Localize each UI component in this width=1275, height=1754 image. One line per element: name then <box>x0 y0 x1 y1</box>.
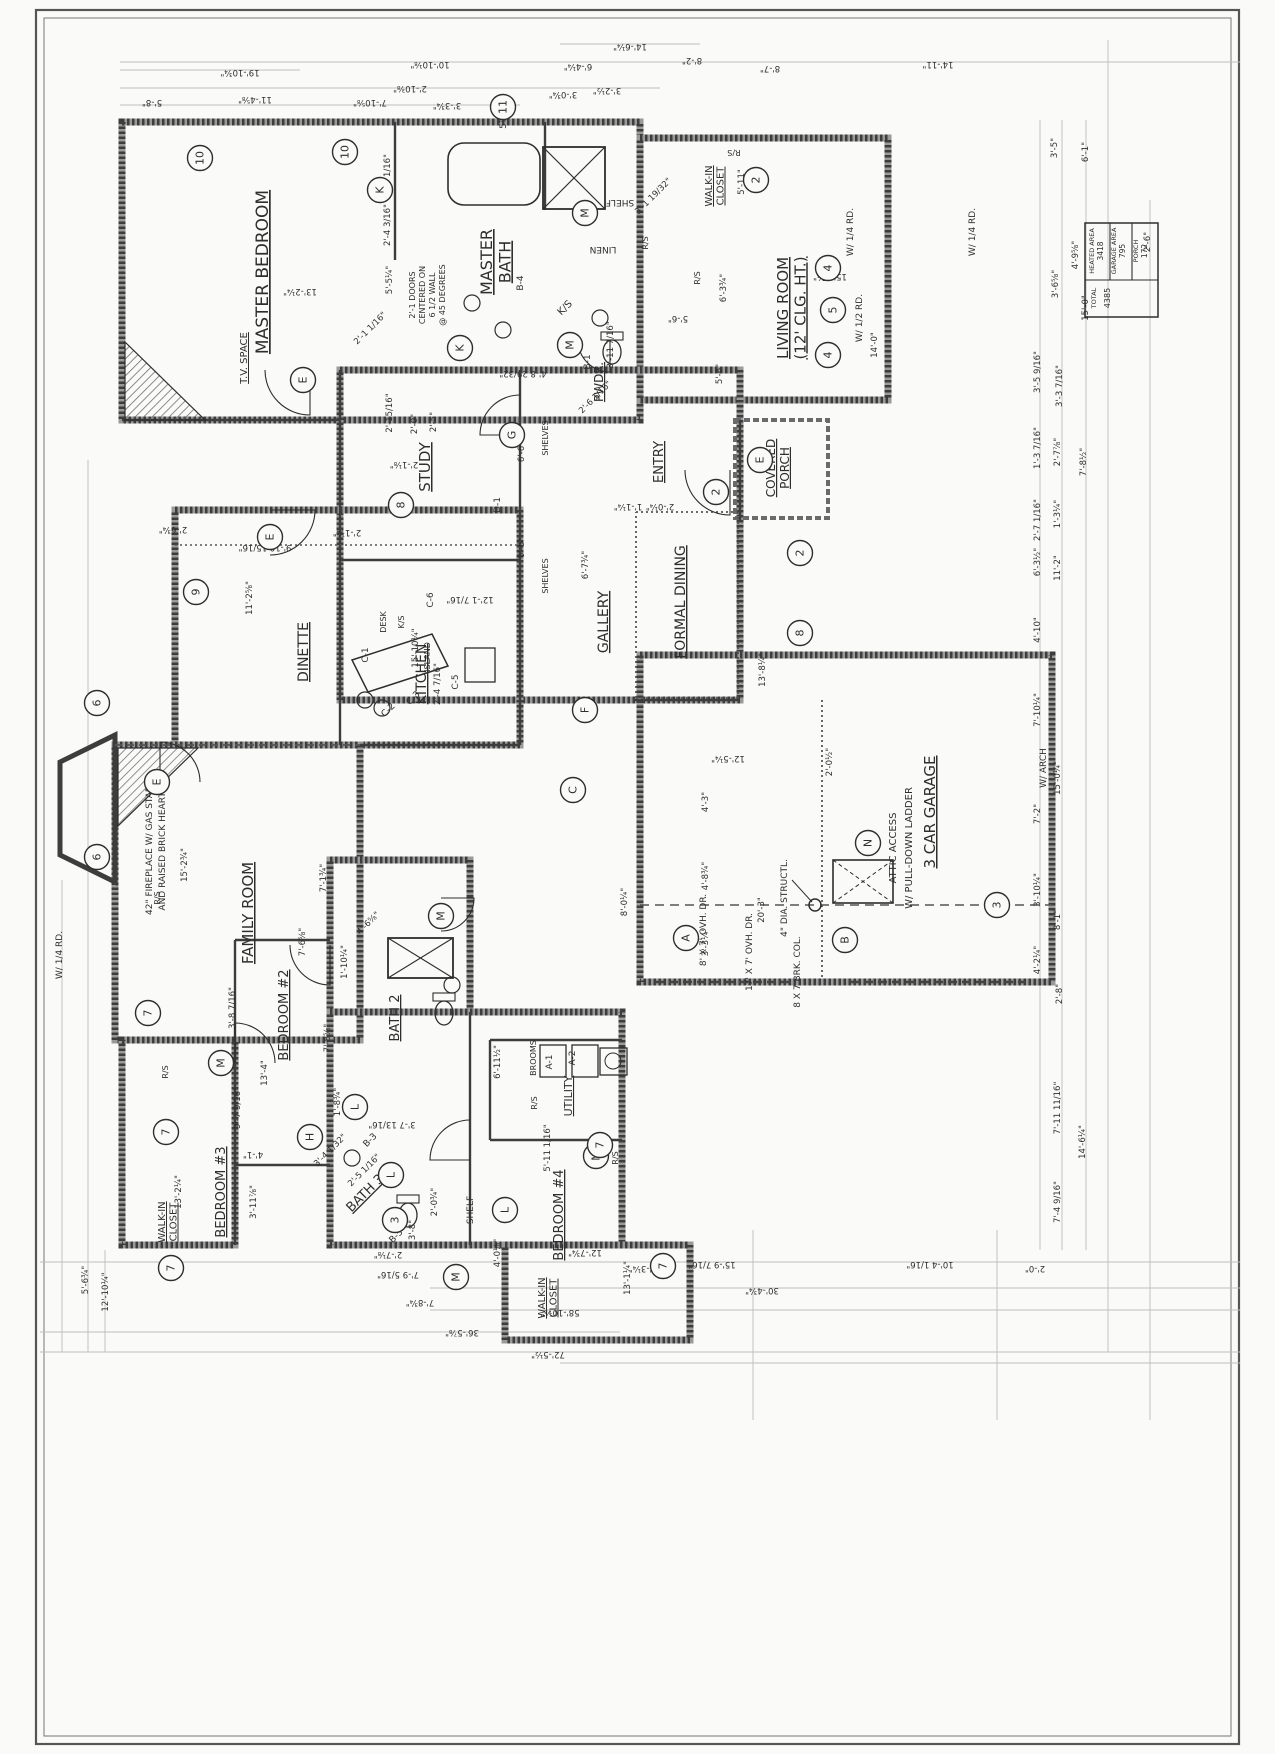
annotation-label: W/ ARCH <box>1039 748 1049 788</box>
dimension-text: 6'-7¾" <box>581 551 591 579</box>
dimension-text: 15'-9 7/16" <box>688 1259 735 1269</box>
annotation-label: SHELF <box>606 197 634 207</box>
dimension-text: 2'-10⅜" <box>393 83 427 93</box>
marker-label: A <box>680 934 693 942</box>
dimension-text: 2'-0" <box>1025 1263 1045 1273</box>
door-swing <box>290 945 330 985</box>
marker-label: M <box>579 208 592 218</box>
dimension-text: 4'-9⅝" <box>1071 241 1081 269</box>
dimension-text: 3'-8 7/16" <box>228 987 238 1029</box>
marker-label: H <box>304 1133 317 1141</box>
annotation-label: A-1 <box>545 1055 555 1070</box>
annotation-label: W/ 1/4 RD. <box>968 208 978 256</box>
annotation-label: K/S <box>397 615 406 628</box>
annotation-label: W/ 1/4 RD. <box>55 931 65 979</box>
dimension-text: 2'-0½" <box>825 748 835 776</box>
marker-label: 2 <box>794 550 807 557</box>
marker-label: K <box>454 344 467 352</box>
dimension-text: 3'-3 7/16" <box>1055 365 1065 407</box>
annotation-label: 4" DIA. STRUCTL. <box>780 859 790 937</box>
blueprint-page: MASTER BEDROOMMASTERBATHLIVING ROOM(12' … <box>0 0 1275 1754</box>
room-label: BEDROOM #2 <box>277 969 292 1060</box>
room-label: T.V. SPACE <box>239 332 250 385</box>
sink <box>444 977 460 993</box>
dimension-text: 6'-11½" <box>493 1045 503 1079</box>
dimension-text: 7'-11 11/16" <box>1053 1082 1063 1135</box>
dimension-text: 1'-8¾" <box>333 1088 343 1116</box>
dimension-text: 13'-4" <box>260 1060 270 1086</box>
dimension-text: 2'-7⅛" <box>374 1249 402 1259</box>
dimension-text: 2'-0" <box>410 414 420 434</box>
annotation-label: 17' X 7' OVH. DR. <box>745 913 755 991</box>
annotation-label: C-1 <box>361 647 371 662</box>
marker-label: M <box>564 340 577 350</box>
marker-label: L <box>349 1103 362 1110</box>
dimension-text: 36'-5⅞" <box>445 1327 479 1337</box>
dimension-text: 2'-0¼" <box>646 501 674 511</box>
marker-label: 9 <box>190 589 203 596</box>
marker-label: F <box>579 707 592 713</box>
dimension-text: 13'-8¼" <box>758 653 768 687</box>
room-label: BEDROOM #3 <box>214 1146 229 1237</box>
dimension-text: 15'-10¼" <box>411 628 421 667</box>
marker-label: L <box>499 1206 512 1213</box>
dimension-text: 13'-1¼" <box>623 1261 633 1295</box>
refrigerator <box>465 648 495 682</box>
dimension-text: 12'-1 7/16" <box>446 594 493 604</box>
dimension-text: 6'-4¼" <box>564 61 592 71</box>
annotation-label: ISLAND <box>423 642 432 672</box>
dimension-text: 3'-2½" <box>593 85 621 95</box>
dimension-text: 4'-1" <box>243 1149 263 1159</box>
sink <box>344 1150 360 1166</box>
room-label: UTILITY <box>562 1075 575 1116</box>
dimension-text: 7'-8¾" <box>406 1297 434 1307</box>
area-table-value: 172 <box>1140 244 1149 259</box>
dimension-text: 72'-5½" <box>531 1349 565 1359</box>
toilet-tank <box>397 1195 419 1203</box>
dimension-text: 3'-3¼" <box>701 928 711 956</box>
annotation-label: W/ 1/2 RD. <box>855 294 865 342</box>
dimension-text: 2'-1¼" <box>333 527 361 537</box>
marker-label: 5 <box>827 307 840 314</box>
annotation-label: C-6 <box>426 592 436 608</box>
dimension-text: 3'-7 13/16" <box>368 1119 415 1129</box>
dimension-text: 11'-2⅝" <box>245 581 255 615</box>
annotation-label: SHELVES <box>541 420 550 455</box>
annotation-label: C-5 <box>451 674 461 689</box>
marker-label: K <box>374 186 387 194</box>
annotation-label: SHELVES <box>541 558 550 593</box>
annotation-label: B-4 <box>516 275 526 290</box>
dimension-text: 13'-2¼" <box>174 1175 184 1209</box>
dimension-text: 8'-2" <box>682 55 702 65</box>
marker-label: M <box>450 1272 463 1282</box>
marker-label: 10 <box>194 151 207 165</box>
annotation-label: SHELF <box>466 1196 476 1224</box>
dimension-text: 11'-2" <box>1053 555 1063 581</box>
dimension-text: 3'-5 9/16" <box>1033 351 1043 393</box>
marker-label: L <box>385 1171 398 1178</box>
dimension-text: 3'-3¾" <box>433 100 461 110</box>
area-table-label: GARAGE AREA <box>1110 227 1118 274</box>
annotation-label: 8 X 7 BRK. COL. <box>793 936 803 1008</box>
dimension-text: 4'-8¾" <box>701 862 711 890</box>
annotation-label: R/S <box>693 271 702 284</box>
dimension-text: 10'-4 1/16" <box>906 1259 953 1269</box>
room-label: MASTER BEDROOM <box>253 190 273 354</box>
dimension-text: 4'-8 29/32" <box>499 368 546 378</box>
dimension-text: 4'-0⅛" <box>493 1239 503 1267</box>
room-label: BATH 2 <box>388 995 403 1042</box>
marker-label: 2 <box>710 489 723 496</box>
area-table-value: 3418 <box>1096 241 1105 260</box>
dimension-text: 1'-3 7/16" <box>1033 427 1043 469</box>
sink <box>495 322 511 338</box>
dimension-text: 10'-10⅛" <box>410 59 449 69</box>
marker-label: C <box>567 786 580 794</box>
dimension-text: 15'-2¾" <box>180 848 190 882</box>
marker-label: 6 <box>91 700 104 707</box>
room-label: BEDROOM #4 <box>552 1169 567 1260</box>
marker-label: E <box>264 533 277 540</box>
dimension-text: 4'-10" <box>1033 617 1043 643</box>
dimension-text: 20'-3" <box>757 897 767 923</box>
annotation-label: 2'-1 DOORS <box>408 271 417 318</box>
annotation-label: LINEN <box>590 244 617 254</box>
dimension-text: 6'-1" <box>1081 142 1091 162</box>
marker-label: 7 <box>142 1010 155 1017</box>
dimension-text: 12'-10¼" <box>101 1272 111 1311</box>
marker-label: N <box>862 839 875 847</box>
area-table-total-value: 4385 <box>1103 288 1112 308</box>
dimension-text: 9'-7 9/16" <box>233 1087 243 1129</box>
annotation-label: R/S <box>727 148 740 157</box>
dimension-text: 2'-7 1/16" <box>1033 499 1043 541</box>
dimension-text: 5'-6" <box>715 364 725 384</box>
annotation-label: C-2 <box>380 702 398 720</box>
dimension-text: 2'-8" <box>1055 984 1065 1004</box>
marker-label: 11 <box>497 100 510 114</box>
dimension-text: 7'-1¾" <box>319 864 329 892</box>
marker-label: E <box>754 456 767 463</box>
annotation-label: R/S <box>611 1151 620 1164</box>
annotation-label: R/S <box>641 236 650 249</box>
dimension-text: 14'-6¼" <box>613 41 647 51</box>
dimension-text: 7'-2" <box>1033 804 1043 824</box>
dimension-text: 8'-1" <box>1053 910 1063 930</box>
marker-label: 6 <box>91 854 104 861</box>
dimension-text: 6'-3¾" <box>719 274 729 302</box>
dimension-text: 6'-6" <box>517 538 527 558</box>
marker-label: 7 <box>594 1142 607 1149</box>
marker-label: 4 <box>822 265 835 272</box>
room-label: DINETTE <box>296 622 312 682</box>
dimension-text: 7'-8½" <box>1079 448 1089 476</box>
marker-label: 7 <box>657 1263 670 1270</box>
area-table-label: PORCH <box>1132 240 1140 263</box>
floorplan-canvas: MASTER BEDROOMMASTERBATHLIVING ROOM(12' … <box>0 0 1275 1754</box>
marker-label: 10 <box>339 145 352 159</box>
marker-label: 3 <box>389 1217 402 1224</box>
marker-label: 2 <box>750 177 763 184</box>
sink <box>464 295 480 311</box>
room-label: LIVING ROOM(12' CLG. HT.) <box>774 256 809 359</box>
marker-label: E <box>297 376 310 383</box>
dimension-text: 2'-1 1/16" <box>352 310 389 347</box>
dimension-text: 7'-10¼" <box>1033 693 1043 727</box>
dimension-text: 1'-3¼" <box>1053 500 1063 528</box>
dimension-text: 2'-1⅛" <box>390 459 418 469</box>
marker-label: 8 <box>794 630 807 637</box>
dimension-text: 4'-3" <box>701 792 711 812</box>
dimension-text: 14'-6¼" <box>1078 1125 1088 1159</box>
dimension-text: 2'-4 3/16" <box>383 204 393 246</box>
dimension-text: 5'-6" <box>668 313 688 323</box>
annotation-label: @ 45 DEGREES <box>438 264 447 325</box>
room-label: GALLERY <box>596 590 612 653</box>
dimension-text: 7'-4 9/16" <box>1053 1181 1063 1223</box>
annotation-label: 6 1/2 WALL <box>428 272 437 317</box>
dimension-text: 19'-10¾" <box>220 67 259 77</box>
annotation-label: B-1 <box>583 354 593 369</box>
dimension-text: 3'-6⅝" <box>1051 270 1061 298</box>
marker-label: M <box>435 911 448 921</box>
annotation-label: W/ 1/4 RD. <box>846 208 856 256</box>
dimension-text: 7'-10⅝" <box>353 97 387 107</box>
marker-label: 8 <box>395 502 408 509</box>
toilet-tank <box>433 993 455 1001</box>
dimension-text: 13'-2¼" <box>283 286 317 296</box>
dimension-text: 4'-2¼" <box>1033 946 1043 974</box>
dimension-text: 2'-7⅞" <box>1053 438 1063 466</box>
marker-label: 3 <box>991 902 1004 909</box>
attic-x <box>833 860 893 903</box>
annotation-label: R/S <box>161 1065 170 1078</box>
dimension-text: 3'-11⅞" <box>249 1185 259 1219</box>
bathtub-master <box>448 143 540 205</box>
dimension-text: 8'-0¼" <box>620 888 630 916</box>
dimension-text: 1'-10¼" <box>340 945 350 979</box>
dimension-text: 30'-4¾" <box>745 1285 779 1295</box>
dimension-text: 1'-1¼" <box>614 501 642 511</box>
area-table-value: 795 <box>1118 244 1127 259</box>
dimension-text: 5'-11 1/16" <box>543 1124 553 1171</box>
marker-label: 7 <box>165 1265 178 1272</box>
annotation-label: ATTIC ACCESS <box>888 813 899 884</box>
dimension-text: 2'-15/16" <box>385 393 395 432</box>
dimension-text: 2'-6¾" <box>159 524 187 534</box>
dimension-text: 2'-0¾" <box>430 1188 440 1216</box>
leader-line <box>792 880 812 902</box>
room-label: FORMAL DINING <box>673 545 689 659</box>
annotation-label: K/S <box>556 299 575 318</box>
dimension-text: 7'-8⅝" <box>323 1024 333 1052</box>
marker-label: B <box>839 936 852 944</box>
room-label: FAMILY ROOM <box>239 862 257 964</box>
annotation-label: CENTERED ON <box>418 266 427 324</box>
dimension-text: 11'-4⅝" <box>238 94 272 104</box>
dimension-text: 3'-5" <box>1050 138 1060 158</box>
dimension-text: 2'-5" <box>429 412 439 432</box>
marker-label: G <box>506 431 519 440</box>
dimension-text: 3'-11 7/16" <box>606 321 616 368</box>
dimension-text: 3'-10¼" <box>1033 873 1043 907</box>
dimension-text: 2'-4 7/16" <box>433 663 443 705</box>
dimension-text: 7'-6⅝" <box>298 928 308 956</box>
dimension-text: 5'-8" <box>142 97 162 107</box>
annotation-label: B-3 <box>362 1132 380 1150</box>
area-table-label: HEATED AREA <box>1088 228 1096 274</box>
annotation-label: BROOMS <box>529 1040 538 1076</box>
marker-label: E <box>151 778 164 785</box>
room-label: ENTRY <box>652 441 667 483</box>
dimension-text: 7'-9 5/16" <box>377 1269 419 1279</box>
dimension-text: 15'-0¼" <box>1053 761 1063 795</box>
annotation-label: W/ PULL-DOWN LADDER <box>904 787 915 909</box>
dimension-text: 5'-5¼" <box>385 266 395 294</box>
wall-bath2-block <box>330 860 470 1012</box>
room-label: MASTERBATH <box>477 229 514 295</box>
fireplace-master <box>125 342 205 420</box>
dimension-text: 5'-6¾" <box>81 1266 91 1294</box>
room-label: WALK-INCLOSET <box>704 165 727 206</box>
marker-label: M <box>215 1058 228 1068</box>
annotation-label: DESK <box>379 610 388 632</box>
dimension-text: 3'-8" <box>408 1220 418 1240</box>
annotation-label: A-2 <box>568 1051 578 1066</box>
marker-label: 7 <box>160 1129 173 1136</box>
annotation-label: D-1 <box>493 497 503 513</box>
marker-label: 4 <box>822 352 835 359</box>
door-swing <box>430 1120 470 1160</box>
dimension-text: 58'-10⅝" <box>540 1307 579 1317</box>
annotation-label: R/S <box>530 1096 539 1109</box>
annotation-label: AND RAISED BRICK HEARTH <box>158 785 168 910</box>
wall-bath2-block <box>330 860 470 1012</box>
dimension-text: 3'-0¾" <box>549 89 577 99</box>
dimension-text: 14'-11" <box>922 59 953 69</box>
annotation-label: 42" FIREPLACE W/ GAS START <box>145 781 155 915</box>
dimension-text: 8'-7" <box>760 63 780 73</box>
dimension-text: 14'-0" <box>870 332 880 358</box>
area-table-total-label: TOTAL <box>1090 287 1098 309</box>
dimension-text: 12'-7¾" <box>568 1247 602 1257</box>
room-label: 3 CAR GARAGE <box>921 755 939 868</box>
dimension-text: 12'-5¼" <box>711 753 745 763</box>
dimension-text: 6'-3½" <box>1033 548 1043 576</box>
